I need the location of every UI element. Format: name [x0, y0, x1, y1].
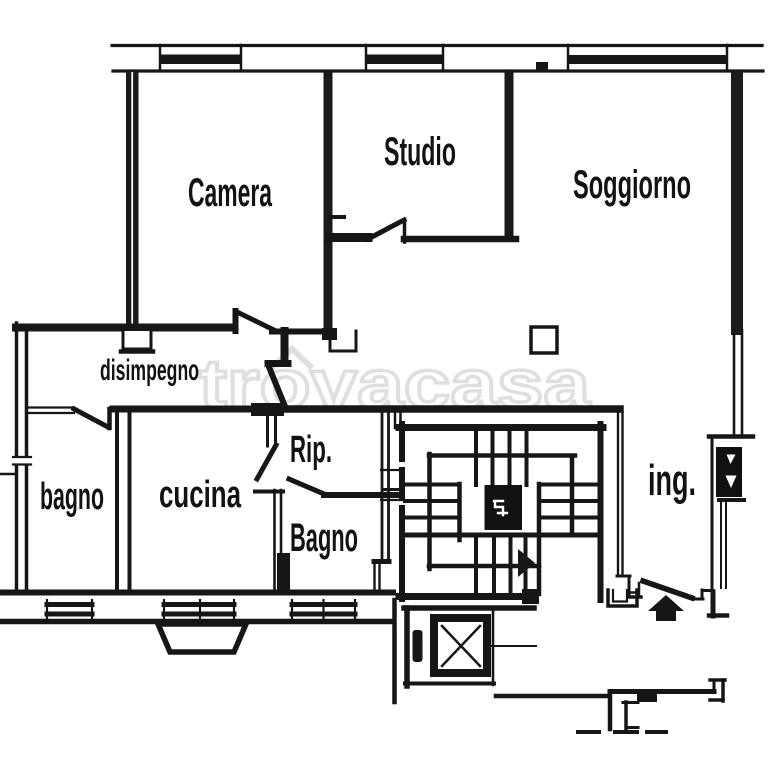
svg-text:Camera: Camera — [188, 171, 272, 215]
svg-text:Rip.: Rip. — [290, 429, 332, 471]
svg-text:Studio: Studio — [384, 130, 456, 174]
svg-text:bagno: bagno — [40, 476, 104, 518]
svg-text:cucina: cucina — [159, 474, 242, 516]
svg-text:disimpegno: disimpegno — [100, 354, 199, 387]
svg-text:Bagno: Bagno — [290, 516, 358, 560]
svg-text:Soggiorno: Soggiorno — [573, 163, 691, 207]
svg-text:ing.: ing. — [648, 456, 696, 505]
